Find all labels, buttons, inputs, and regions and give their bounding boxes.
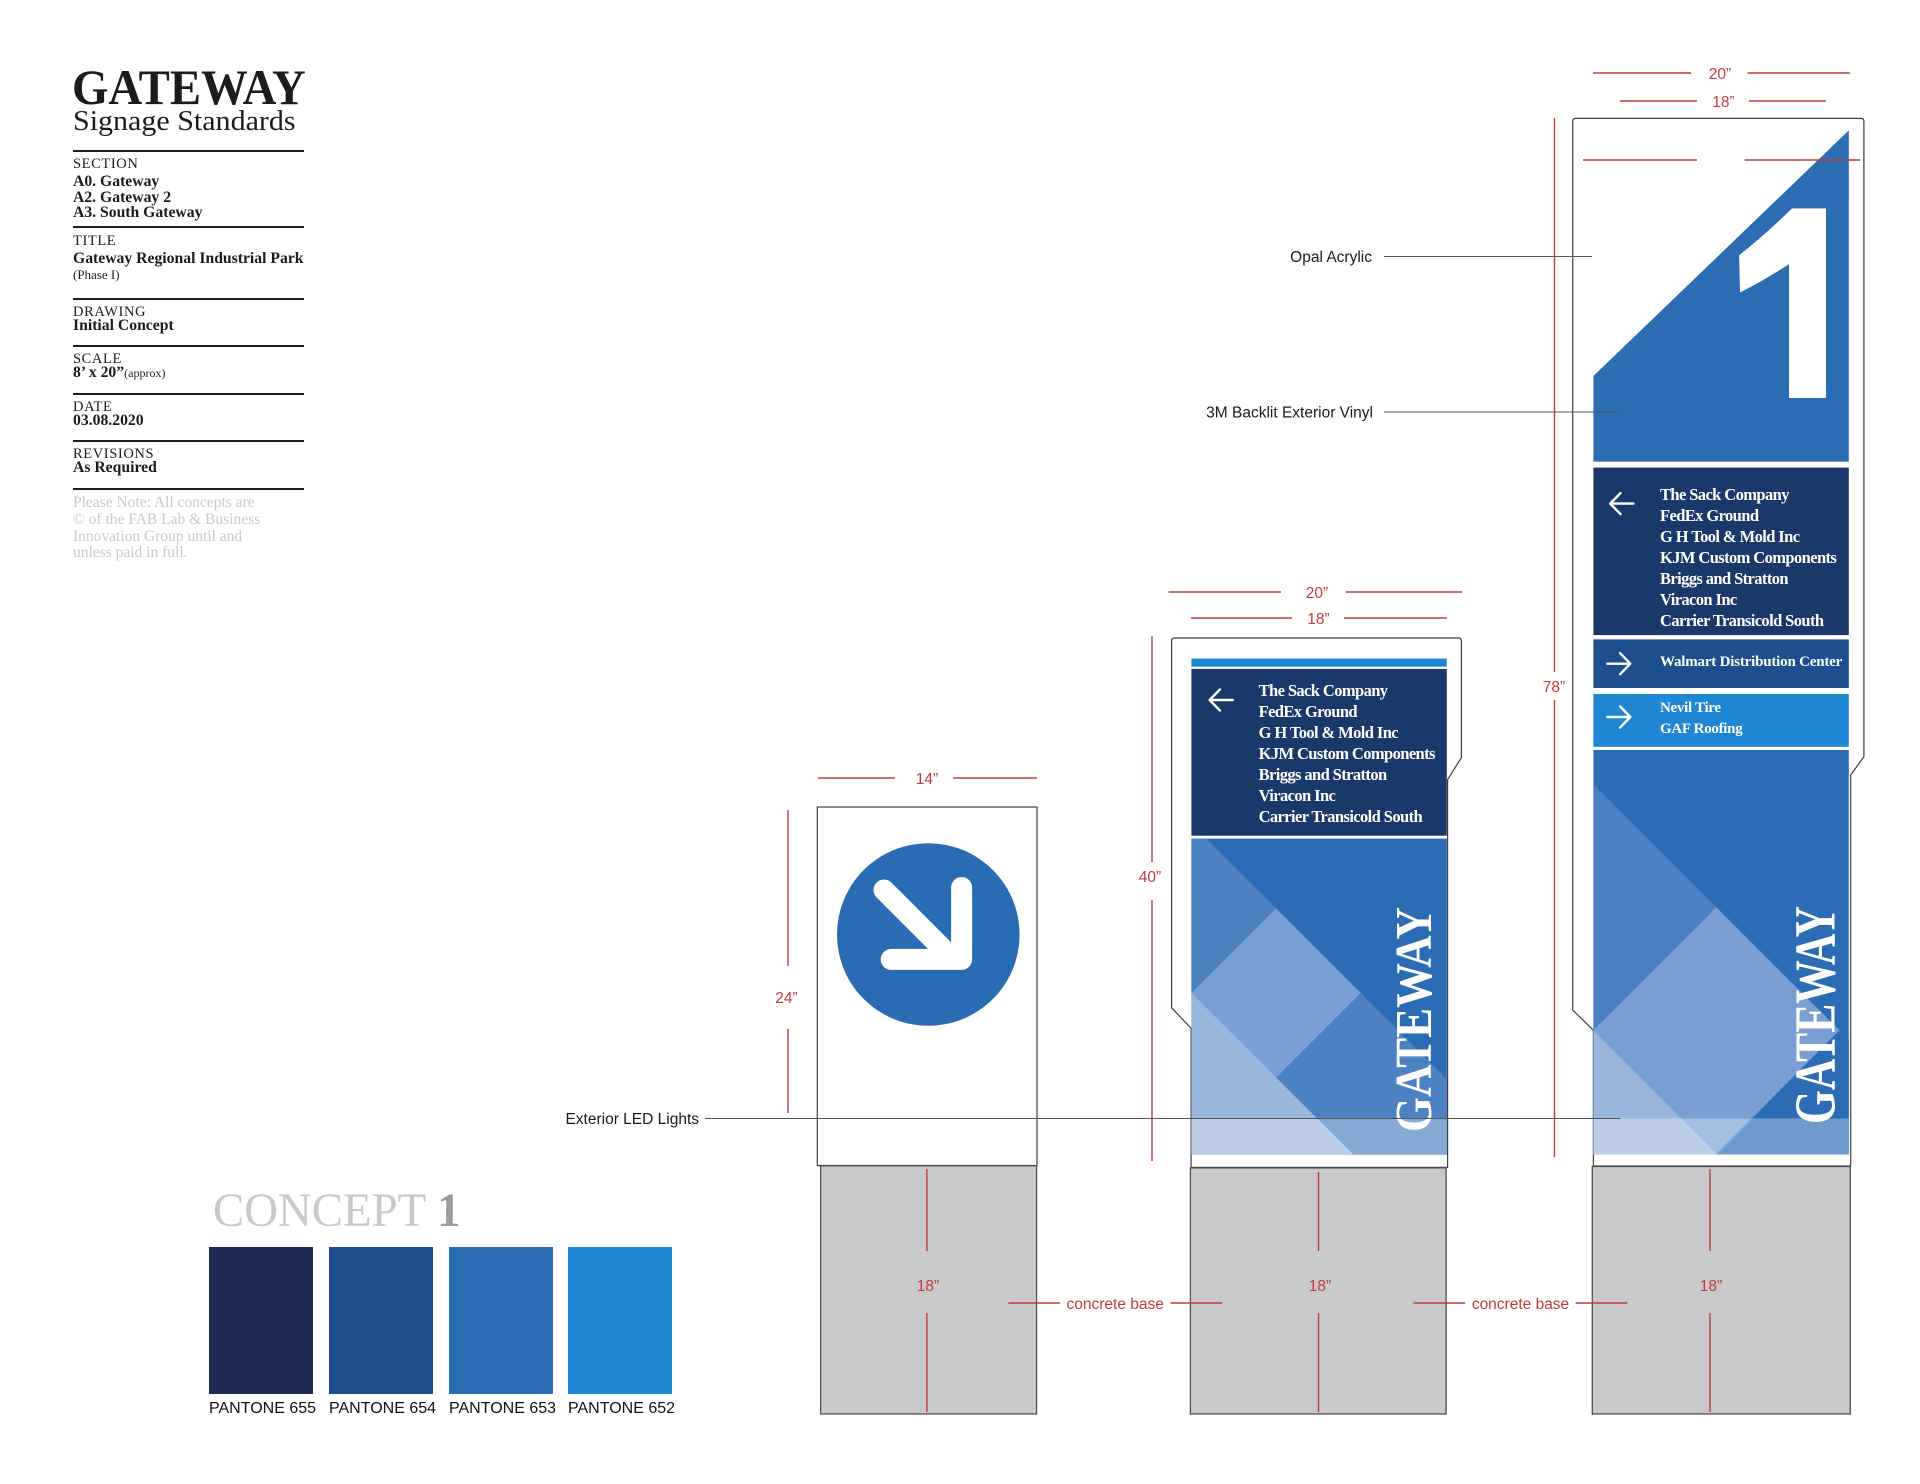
- svg-text:18”: 18”: [1307, 611, 1329, 628]
- svg-text:Viracon Inc: Viracon Inc: [1660, 590, 1737, 609]
- svg-text:KJM Custom Components: KJM Custom Components: [1259, 744, 1436, 763]
- svg-text:Carrier Transicold South: Carrier Transicold South: [1259, 807, 1423, 826]
- svg-text:GATEWAY: GATEWAY: [1783, 906, 1848, 1124]
- svg-text:FedEx Ground: FedEx Ground: [1660, 506, 1759, 525]
- svg-text:3M Backlit Exterior Vinyl: 3M Backlit Exterior Vinyl: [1206, 405, 1373, 422]
- svg-text:GAF Roofing: GAF Roofing: [1660, 721, 1743, 737]
- svg-text:Briggs and Stratton: Briggs and Stratton: [1259, 765, 1387, 784]
- svg-text:Opal Acrylic: Opal Acrylic: [1290, 249, 1372, 266]
- svg-text:20”: 20”: [1306, 585, 1328, 602]
- svg-text:Briggs and Stratton: Briggs and Stratton: [1660, 569, 1788, 588]
- svg-text:FedEx Ground: FedEx Ground: [1259, 702, 1358, 721]
- svg-text:G H Tool & Mold Inc: G H Tool & Mold Inc: [1660, 527, 1800, 546]
- svg-text:40”: 40”: [1139, 869, 1161, 886]
- svg-text:concrete base: concrete base: [1472, 1296, 1569, 1313]
- svg-text:concrete base: concrete base: [1067, 1296, 1164, 1313]
- svg-text:18”: 18”: [1309, 1278, 1331, 1295]
- svg-text:14”: 14”: [916, 771, 938, 788]
- svg-text:Carrier Transicold South: Carrier Transicold South: [1660, 611, 1824, 630]
- svg-text:18”: 18”: [917, 1278, 939, 1295]
- svg-text:Nevil Tire: Nevil Tire: [1660, 700, 1721, 716]
- svg-text:18”: 18”: [1712, 94, 1734, 111]
- svg-text:Walmart Distribution Center: Walmart Distribution Center: [1660, 654, 1843, 670]
- svg-text:78”: 78”: [1543, 679, 1565, 696]
- svg-text:G H Tool & Mold Inc: G H Tool & Mold Inc: [1259, 723, 1399, 742]
- svg-text:KJM Custom Components: KJM Custom Components: [1660, 548, 1837, 567]
- svg-text:18”: 18”: [1700, 1278, 1722, 1295]
- svg-text:GATEWAY: GATEWAY: [1386, 907, 1443, 1132]
- svg-text:20”: 20”: [1709, 66, 1731, 83]
- svg-text:24”: 24”: [775, 990, 797, 1007]
- svg-text:The Sack Company: The Sack Company: [1259, 681, 1389, 700]
- svg-text:The Sack Company: The Sack Company: [1660, 485, 1790, 504]
- svg-text:Exterior LED Lights: Exterior LED Lights: [565, 1111, 699, 1128]
- svg-text:Viracon Inc: Viracon Inc: [1259, 786, 1336, 805]
